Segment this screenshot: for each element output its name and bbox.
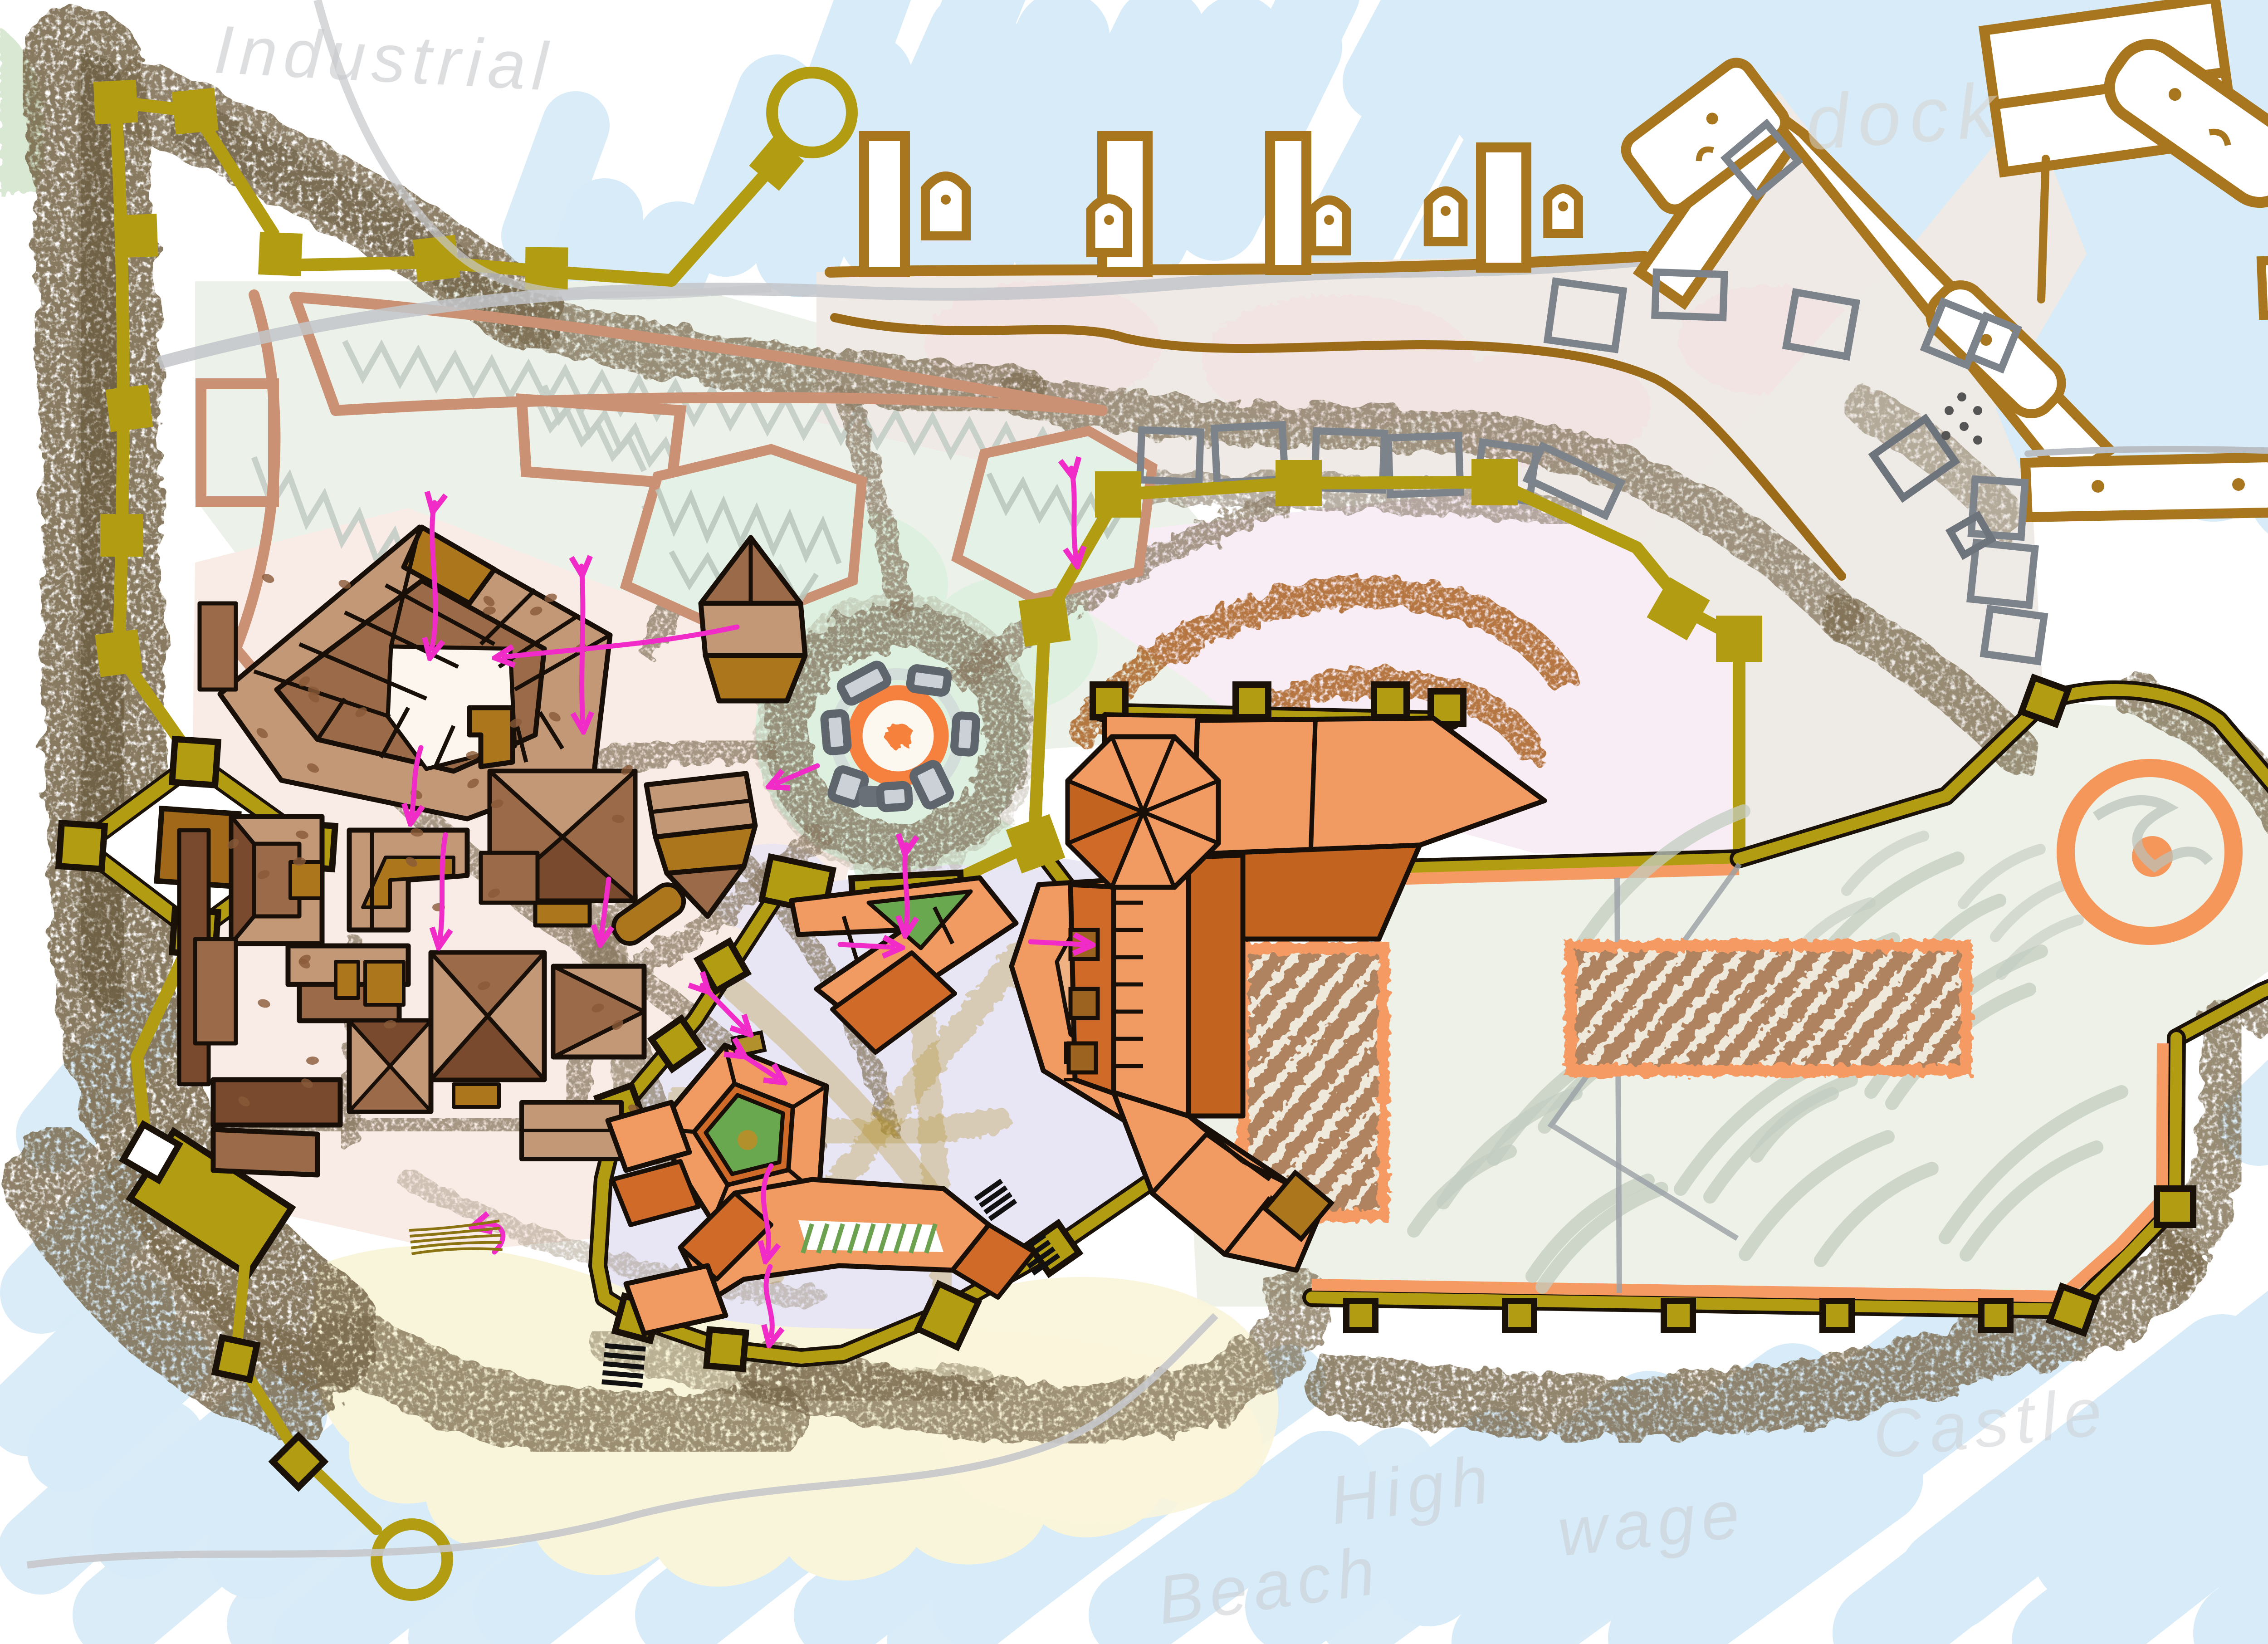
svg-text:dock: dock <box>1803 67 2007 166</box>
